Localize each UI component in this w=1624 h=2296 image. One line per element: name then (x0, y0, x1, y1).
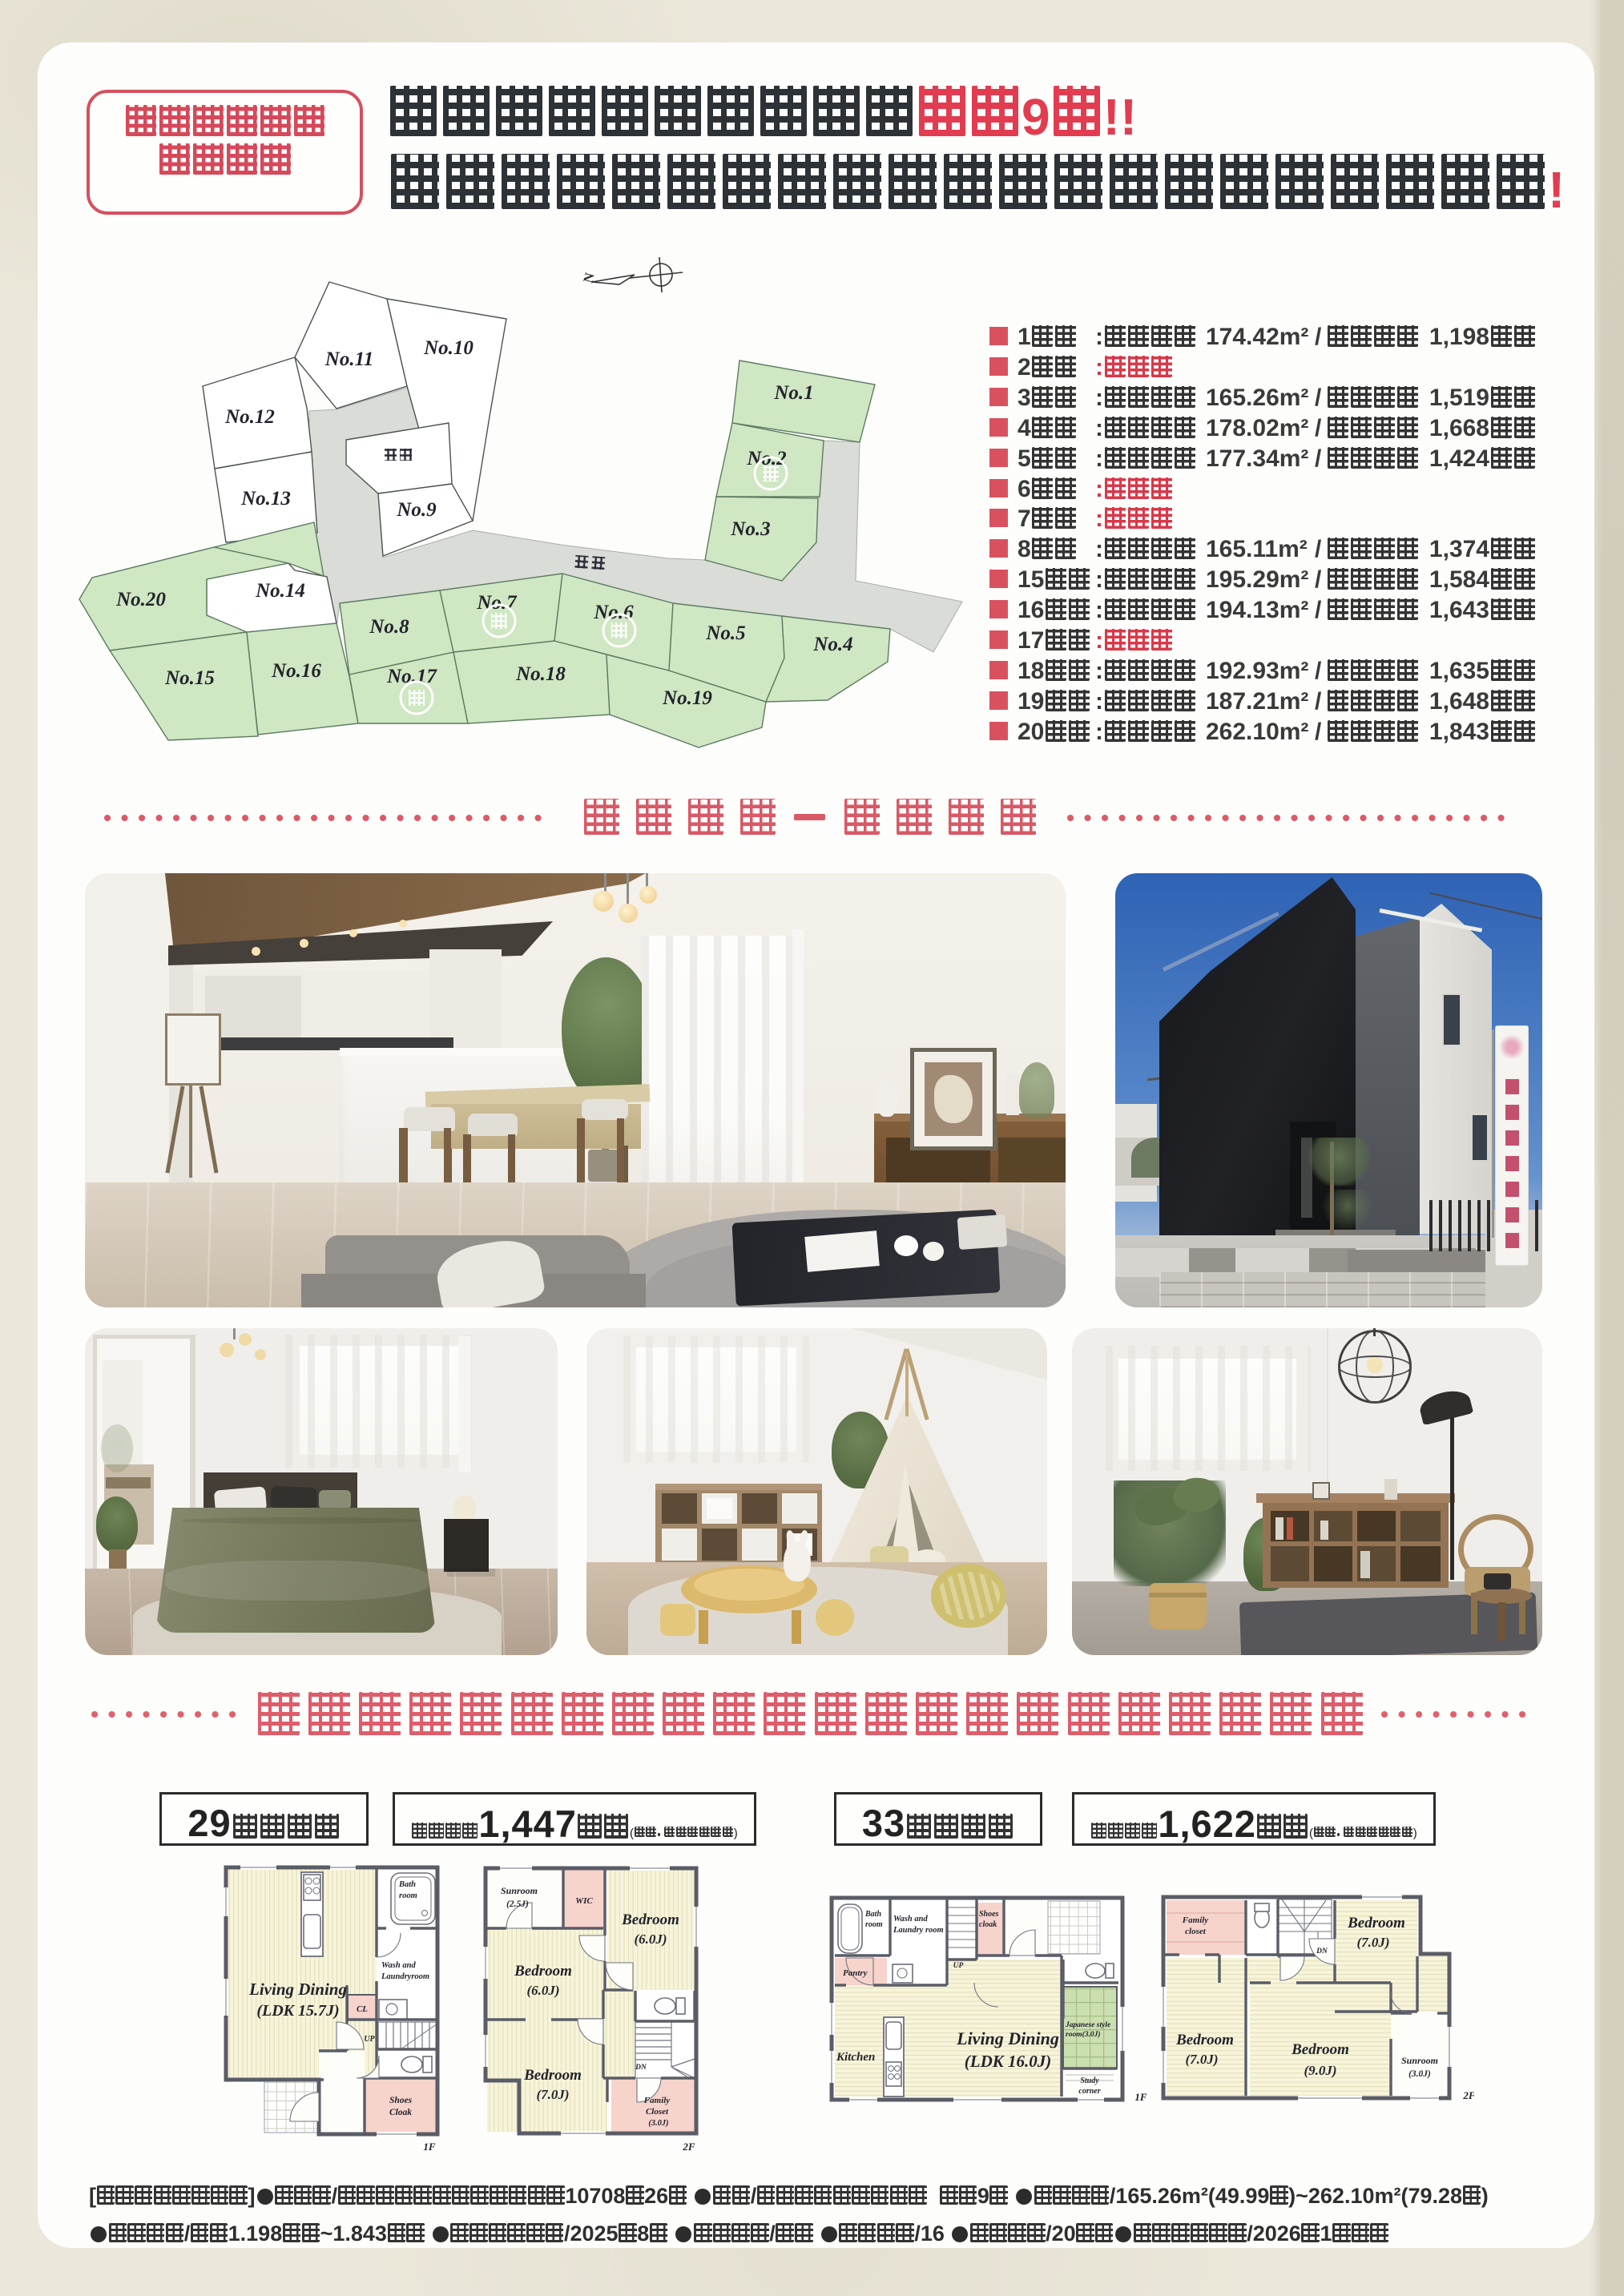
svg-text:(3.0J): (3.0J) (1408, 2069, 1431, 2079)
svg-text:Sunroom: Sunroom (501, 1885, 538, 1896)
svg-text:Shoes: Shoes (389, 2096, 413, 2105)
svg-text:(6.0J): (6.0J) (526, 1983, 559, 1998)
svg-text:Bedroom: Bedroom (1291, 2041, 1349, 2058)
svg-text:UP: UP (364, 2035, 375, 2044)
svg-text:Living Dining: Living Dining (956, 2028, 1059, 2048)
svg-text:corner: corner (1078, 2087, 1100, 2096)
svg-text:Bedroom: Bedroom (523, 2067, 582, 2084)
svg-text:Cloak: Cloak (389, 2108, 412, 2117)
svg-text:Living Dining: Living Dining (248, 1980, 347, 1999)
svg-text:(6.0J): (6.0J) (634, 1931, 667, 1947)
svg-text:2F: 2F (682, 2141, 695, 2153)
svg-text:CL: CL (357, 2004, 368, 2014)
svg-text:Study: Study (1080, 2076, 1099, 2085)
svg-text:(7.0J): (7.0J) (536, 2087, 569, 2102)
svg-text:Kitchen: Kitchen (836, 2051, 875, 2064)
svg-text:UP: UP (953, 1962, 964, 1970)
svg-text:DN: DN (1316, 1948, 1328, 1956)
svg-text:Bedroom: Bedroom (1175, 2032, 1234, 2048)
svg-text:Bath: Bath (398, 1880, 416, 1889)
svg-text:Wash and: Wash and (381, 1961, 416, 1970)
svg-text:Shoes: Shoes (979, 1910, 999, 1919)
svg-text:cloak: cloak (979, 1920, 997, 1929)
svg-text:Pantry: Pantry (843, 1968, 868, 1978)
svg-text:Laundry room: Laundry room (893, 1926, 944, 1935)
svg-text:(3.0J): (3.0J) (648, 2119, 668, 2128)
svg-text:Wash and: Wash and (893, 1915, 928, 1923)
svg-text:Japanese style: Japanese style (1065, 2021, 1111, 2029)
svg-text:Bedroom: Bedroom (1347, 1915, 1405, 1931)
svg-text:WIC: WIC (575, 1896, 593, 1906)
svg-text:(LDK 16.0J): (LDK 16.0J) (965, 2052, 1052, 2071)
svg-text:Sunroom: Sunroom (1401, 2055, 1438, 2066)
svg-text:Family: Family (1182, 1915, 1209, 1925)
svg-text:room(3.0J): room(3.0J) (1066, 2030, 1101, 2039)
svg-text:1F: 1F (1134, 2091, 1147, 2103)
svg-text:room: room (865, 1920, 883, 1929)
svg-text:2F: 2F (1462, 2089, 1474, 2101)
svg-text:(9.0J): (9.0J) (1304, 2063, 1336, 2078)
svg-text:(LDK 15.7J): (LDK 15.7J) (256, 2002, 339, 2020)
svg-text:(2.5J): (2.5J) (506, 1899, 529, 1909)
svg-text:Bath: Bath (864, 1910, 881, 1919)
svg-text:room: room (399, 1891, 417, 1900)
svg-text:DN: DN (635, 2064, 647, 2072)
svg-text:(7.0J): (7.0J) (1185, 2052, 1218, 2067)
svg-text:Laundryroom: Laundryroom (381, 1972, 429, 1981)
svg-text:Bedroom: Bedroom (514, 1963, 572, 1980)
svg-text:Closet: Closet (646, 2107, 669, 2117)
svg-text:closet: closet (1185, 1927, 1207, 1936)
svg-text:(7.0J): (7.0J) (1356, 1935, 1389, 1950)
svg-text:Bedroom: Bedroom (621, 1911, 679, 1928)
svg-text:1F: 1F (423, 2141, 436, 2153)
svg-text:Family: Family (643, 2096, 671, 2105)
